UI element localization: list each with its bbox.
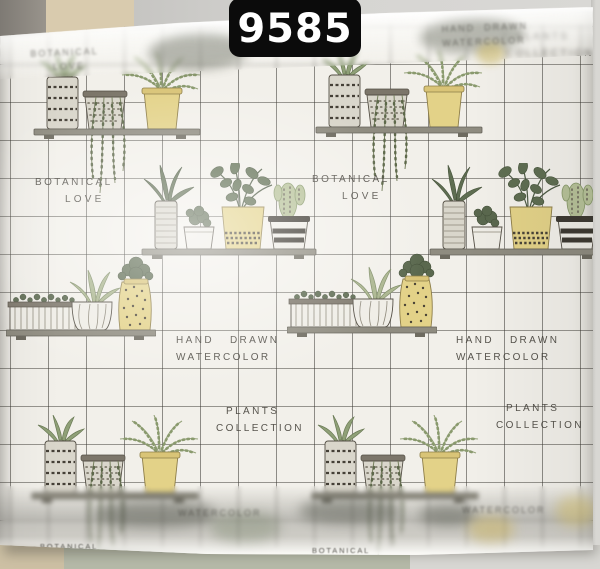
blurred-watercolor-text: WATERCOLOR xyxy=(178,506,262,520)
botanical-love-text: BOTANICAL LOVE xyxy=(312,171,390,205)
love-word: LOVE xyxy=(342,188,390,205)
collection-word: COLLECTION xyxy=(496,417,584,434)
shelf-quartet-motif xyxy=(140,163,318,263)
botanical-word: BOTANICAL xyxy=(35,174,113,191)
shelf-quartet-motif xyxy=(428,163,593,263)
planter-row-motif xyxy=(6,254,156,342)
wallpaper-film-sheet: BOTANICAL LOVE BOTANICAL LOVE HAND DRAWN… xyxy=(0,0,593,558)
blurred-watercolor-text: WATERCOLOR xyxy=(462,503,546,517)
plants-word: PLANTS xyxy=(506,400,584,417)
botanical-word: BOTANICAL xyxy=(312,171,390,188)
hand-word: HAND xyxy=(176,332,214,349)
drawn-word: DRAWN xyxy=(230,332,279,349)
hand-drawn-watercolor-text: HAND DRAWN WATERCOLOR xyxy=(456,332,559,366)
watercolor-word: WATERCOLOR xyxy=(456,349,559,366)
grid-tile-pattern: BOTANICAL LOVE BOTANICAL LOVE HAND DRAWN… xyxy=(0,24,593,548)
blurred-yellow-pot-silhouette xyxy=(468,516,514,542)
plants-word: PLANTS xyxy=(226,403,304,420)
planter-row-motif xyxy=(287,251,437,339)
collection-word: COLLECTION xyxy=(216,420,304,437)
watercolor-word: WATERCOLOR xyxy=(176,349,279,366)
hand-drawn-watercolor-text: HAND DRAWN WATERCOLOR xyxy=(176,332,279,366)
rolled-bottom-edge: WATERCOLOR WATERCOLOR BOTANICAL BOTANICA… xyxy=(0,486,593,556)
drawn-word: DRAWN xyxy=(510,332,559,349)
blurred-pot-silhouette xyxy=(300,498,400,524)
plants-collection-text: PLANTS COLLECTION xyxy=(496,400,584,434)
product-code-text: 9585 xyxy=(237,4,352,52)
hand-word: HAND xyxy=(456,332,494,349)
blurred-hand-drawn-text: HAND DRAWN WATERCOLOR xyxy=(441,19,528,50)
blurred-yellow-pot-silhouette xyxy=(556,496,593,526)
product-photo: BOTANICAL LOVE BOTANICAL LOVE HAND DRAWN… xyxy=(0,0,600,569)
plants-collection-text: PLANTS COLLECTION xyxy=(216,403,304,437)
botanical-love-text: BOTANICAL LOVE xyxy=(35,174,113,208)
blurred-botanical-love-text: BOTANICAL LOVE xyxy=(30,44,99,75)
botanical-edge-text: BOTANICAL xyxy=(312,546,370,555)
love-word: LOVE xyxy=(65,191,113,208)
product-code-badge: 9585 xyxy=(229,0,361,57)
